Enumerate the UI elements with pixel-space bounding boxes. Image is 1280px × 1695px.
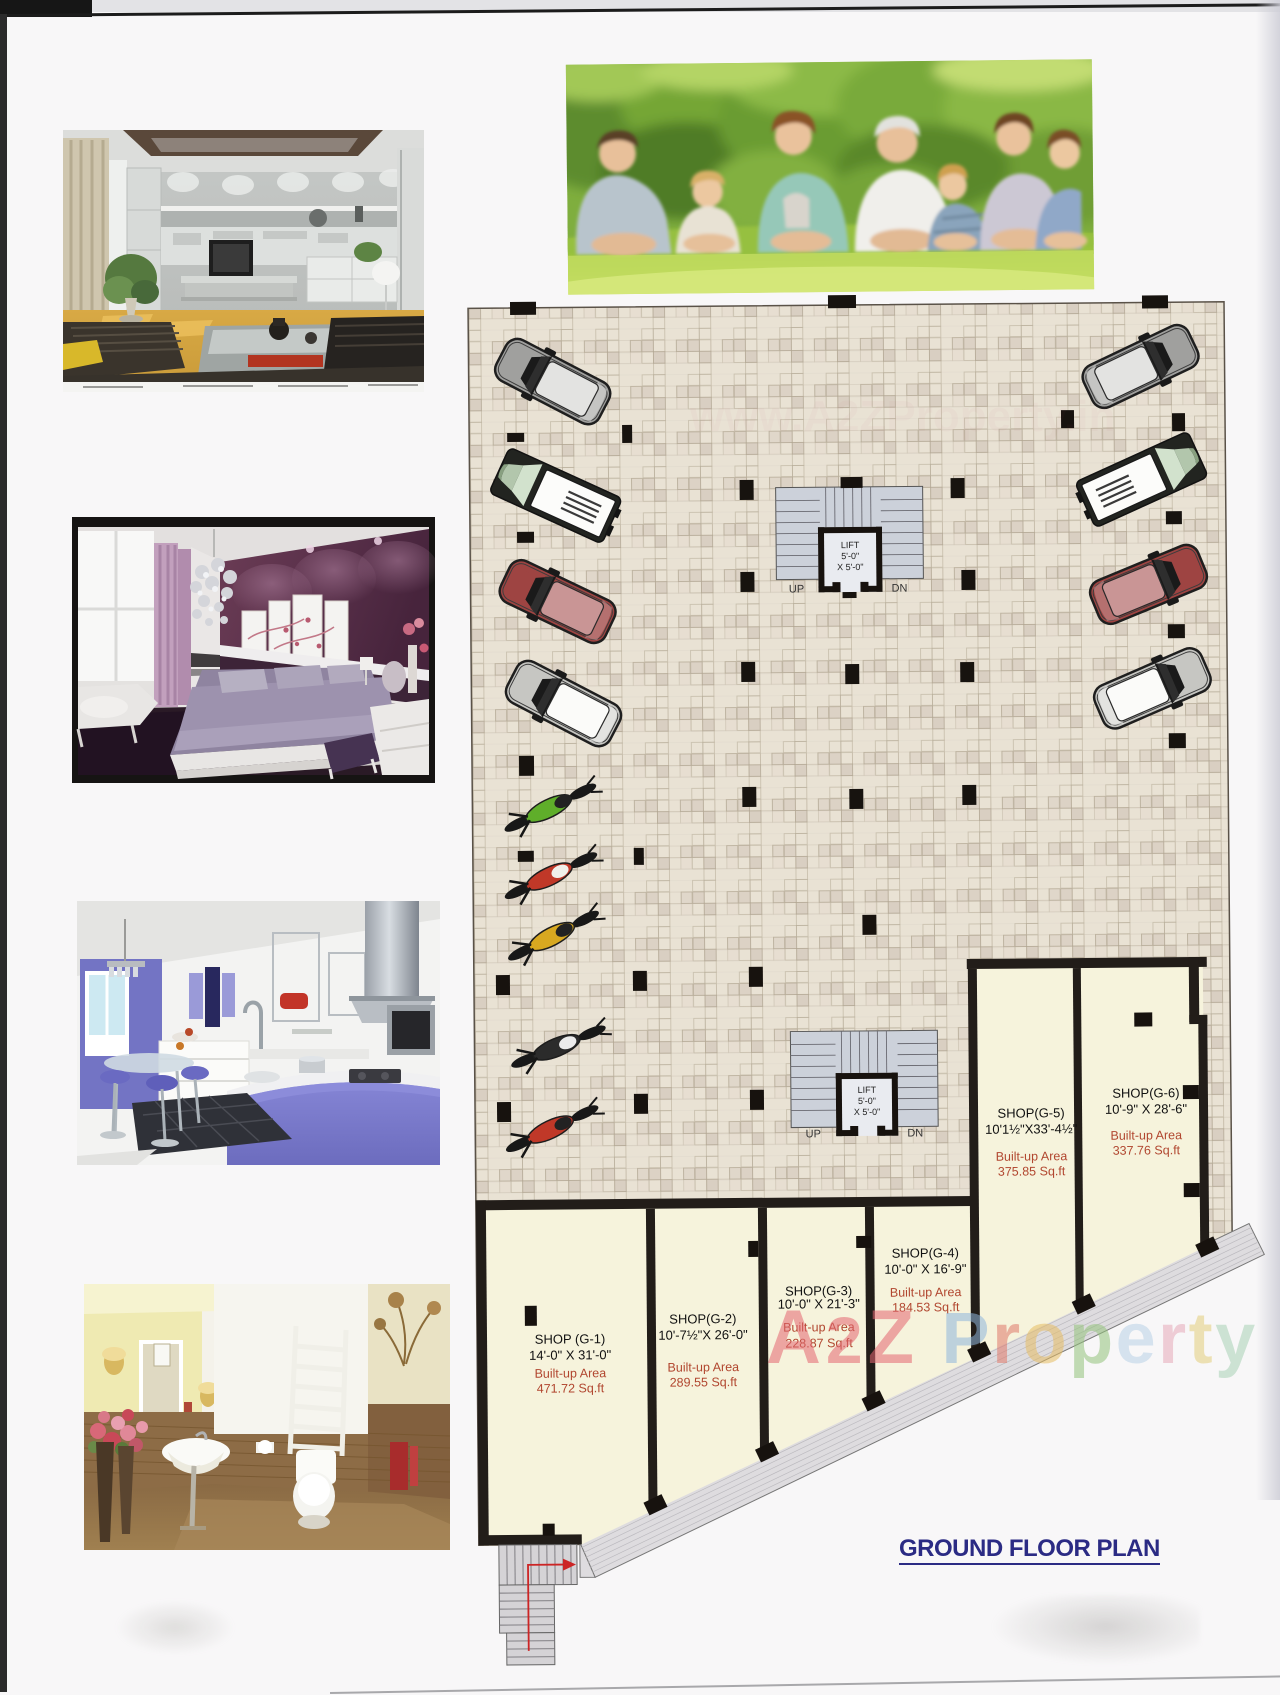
svg-text:Built-up Area: Built-up Area [667,1360,739,1375]
svg-text:LIFT: LIFT [858,1085,877,1095]
svg-text:Built-up Area: Built-up Area [996,1149,1068,1164]
svg-text:X 5'-0": X 5'-0" [837,562,864,572]
svg-text:SHOP(G-4): SHOP(G-4) [892,1245,959,1261]
svg-text:DN: DN [907,1127,923,1139]
svg-text:471.72 Sq.ft: 471.72 Sq.ft [537,1381,605,1396]
svg-text:SHOP(G-6): SHOP(G-6) [1112,1085,1179,1101]
svg-text:SHOP(G-2): SHOP(G-2) [669,1311,736,1327]
svg-text:Built-up Area: Built-up Area [534,1366,606,1381]
svg-text:UP: UP [789,583,804,595]
svg-text:UP: UP [806,1128,821,1140]
svg-text:Built-up Area: Built-up Area [1110,1128,1182,1143]
svg-text:14'-0" X 31'-0": 14'-0" X 31'-0" [529,1347,612,1363]
svg-text:10'1½"X33'-4½": 10'1½"X33'-4½" [985,1121,1078,1137]
svg-text:5'-0": 5'-0" [841,551,859,561]
svg-text:SHOP(G-5): SHOP(G-5) [997,1105,1064,1121]
svg-text:SHOP (G-1): SHOP (G-1) [535,1331,606,1347]
svg-text:5'-0": 5'-0" [858,1096,876,1106]
svg-text:10'-7½"X 26'-0": 10'-7½"X 26'-0" [658,1327,748,1343]
svg-text:337.76 Sq.ft: 337.76 Sq.ft [1113,1143,1181,1158]
svg-text:X 5'-0": X 5'-0" [854,1107,881,1117]
svg-text:10'-0" X 16'-9": 10'-0" X 16'-9" [884,1261,967,1277]
svg-text:10'-9" X 28'-6": 10'-9" X 28'-6" [1105,1101,1188,1117]
svg-text:DN: DN [892,583,908,595]
svg-text:LIFT: LIFT [841,540,860,550]
svg-text:375.85 Sq.ft: 375.85 Sq.ft [998,1164,1066,1179]
svg-text:289.55 Sq.ft: 289.55 Sq.ft [670,1375,738,1390]
